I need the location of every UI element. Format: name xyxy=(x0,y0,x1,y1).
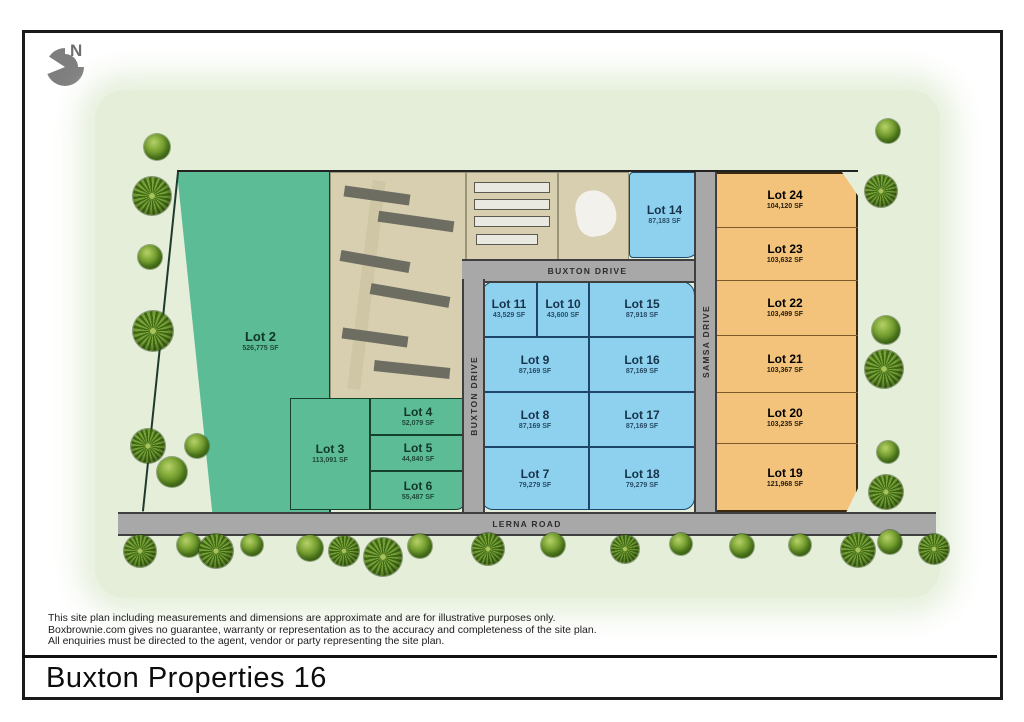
lot-20: Lot 20 103,235 SF xyxy=(712,392,858,443)
lot-14-area: 87,183 SF xyxy=(648,218,680,226)
lot-24-name: Lot 24 xyxy=(767,189,802,201)
disclaimer: This site plan including measurements an… xyxy=(48,613,768,648)
lot-9-area: 87,169 SF xyxy=(519,368,551,376)
lot-17-name: Lot 17 xyxy=(624,409,659,421)
lot-22-name: Lot 22 xyxy=(767,297,802,309)
white-building xyxy=(572,187,619,239)
lot-6-area: 55,487 SF xyxy=(402,494,434,502)
tree-icon xyxy=(329,536,359,566)
tree-icon xyxy=(124,535,156,567)
building-roof xyxy=(370,283,451,308)
aerial-photo-storage xyxy=(466,172,558,260)
lot-23-area: 103,632 SF xyxy=(767,257,803,265)
tree-icon xyxy=(865,350,903,388)
lot-10: Lot 10 43,600 SF xyxy=(537,281,589,337)
lot-19: Lot 19 121,968 SF xyxy=(712,443,858,512)
lot-9-name: Lot 9 xyxy=(521,354,550,366)
lot-6: Lot 6 55,487 SF xyxy=(370,471,466,510)
building-roof xyxy=(378,211,455,232)
tree-icon xyxy=(199,534,233,568)
lot-21-area: 103,367 SF xyxy=(767,367,803,375)
lot-18: Lot 18 79,279 SF xyxy=(589,447,695,510)
plan-title: Buxton Properties 16 xyxy=(46,662,327,695)
lot-3: Lot 3 113,091 SF xyxy=(290,398,370,510)
tree-icon xyxy=(133,177,171,215)
tree-icon xyxy=(670,533,692,555)
tree-icon xyxy=(408,534,432,558)
tree-icon xyxy=(364,538,402,576)
lot-15-name: Lot 15 xyxy=(624,298,659,310)
lot-11-name: Lot 11 xyxy=(492,298,527,310)
lot-23: Lot 23 103,632 SF xyxy=(712,227,858,280)
disclaimer-line-1: This site plan including measurements an… xyxy=(48,613,768,625)
storage-building xyxy=(474,182,550,193)
lot-21: Lot 21 103,367 SF xyxy=(712,335,858,392)
lot-24: Lot 24 104,120 SF xyxy=(712,172,858,227)
tree-icon xyxy=(730,534,754,558)
lot-10-name: Lot 10 xyxy=(545,298,580,310)
lot-5: Lot 5 44,840 SF xyxy=(370,435,466,471)
lot-4-name: Lot 4 xyxy=(404,406,433,418)
tree-icon xyxy=(177,533,201,557)
lot-15-area: 87,918 SF xyxy=(626,312,658,320)
lot-11-area: 43,529 SF xyxy=(493,312,525,320)
tree-icon xyxy=(876,119,900,143)
tree-icon xyxy=(185,434,209,458)
lot-19-name: Lot 19 xyxy=(767,467,802,479)
lot-6-name: Lot 6 xyxy=(404,480,433,492)
north-letter: N xyxy=(70,41,82,60)
lot-16-area: 87,169 SF xyxy=(626,368,658,376)
lot-7: Lot 7 79,279 SF xyxy=(481,447,589,510)
lot-16-name: Lot 16 xyxy=(624,354,659,366)
lot-14-name: Lot 14 xyxy=(647,204,682,216)
tree-icon xyxy=(872,316,900,344)
tree-icon xyxy=(138,245,162,269)
lot-20-area: 103,235 SF xyxy=(767,421,803,429)
lot-14: Lot 14 87,183 SF xyxy=(629,172,700,258)
lot-15: Lot 15 87,918 SF xyxy=(589,281,695,337)
storage-building xyxy=(476,234,538,245)
lot-8: Lot 8 87,169 SF xyxy=(481,392,589,447)
tree-icon xyxy=(241,534,263,556)
lot-9: Lot 9 87,169 SF xyxy=(481,337,589,392)
lot-22: Lot 22 103,499 SF xyxy=(712,280,858,335)
tree-icon xyxy=(131,429,165,463)
tree-icon xyxy=(878,530,902,554)
lot-7-area: 79,279 SF xyxy=(519,482,551,490)
lot-10-area: 43,600 SF xyxy=(547,312,579,320)
lot-4-area: 52,079 SF xyxy=(402,420,434,428)
storage-building xyxy=(474,216,550,227)
north-arrow-icon: N xyxy=(44,40,90,90)
storage-building xyxy=(474,199,550,210)
lot-5-name: Lot 5 xyxy=(404,442,433,454)
tree-icon xyxy=(865,175,897,207)
road-buxton-drive-vertical: BUXTON DRIVE xyxy=(462,279,485,512)
lot-22-area: 103,499 SF xyxy=(767,311,803,319)
lot-7-name: Lot 7 xyxy=(521,468,550,480)
building-roof xyxy=(374,360,451,379)
tree-icon xyxy=(472,533,504,565)
lot-8-area: 87,169 SF xyxy=(519,423,551,431)
lot-17-area: 87,169 SF xyxy=(626,423,658,431)
tree-icon xyxy=(144,134,170,160)
lot-18-name: Lot 18 xyxy=(624,468,659,480)
tree-icon xyxy=(841,533,875,567)
road-buxton-drive-vertical-label: BUXTON DRIVE xyxy=(469,356,479,436)
title-separator-line xyxy=(22,655,997,658)
lot-8-name: Lot 8 xyxy=(521,409,550,421)
lot-18-area: 79,279 SF xyxy=(626,482,658,490)
aerial-photo-building xyxy=(558,172,629,260)
tree-icon xyxy=(611,535,639,563)
tree-icon xyxy=(919,534,949,564)
road-buxton-drive-horizontal-label: BUXTON DRIVE xyxy=(548,266,628,276)
tree-icon xyxy=(869,475,903,509)
lot-17: Lot 17 87,169 SF xyxy=(589,392,695,447)
orange-lot-block: Lot 24 104,120 SF Lot 23 103,632 SF Lot … xyxy=(712,172,858,512)
lot-3-area: 113,091 SF xyxy=(312,457,348,465)
tree-icon xyxy=(297,535,323,561)
road-buxton-drive-horizontal: BUXTON DRIVE xyxy=(462,259,713,283)
lot-11: Lot 11 43,529 SF xyxy=(481,281,537,337)
lot-24-area: 104,120 SF xyxy=(767,203,803,211)
site-plan-page: N Lot 2 526,775 SF Lot 14 87,183 SF Lot … xyxy=(0,0,1024,722)
lot-4: Lot 4 52,079 SF xyxy=(370,398,466,435)
aerial-photo-apartments xyxy=(330,172,466,399)
tree-icon xyxy=(541,533,565,557)
lot-21-name: Lot 21 xyxy=(767,353,802,365)
tree-icon xyxy=(877,441,899,463)
tree-icon xyxy=(157,457,187,487)
tree-icon xyxy=(789,534,811,556)
lot-20-name: Lot 20 xyxy=(767,407,802,419)
lot-5-area: 44,840 SF xyxy=(402,456,434,464)
lot-16: Lot 16 87,169 SF xyxy=(589,337,695,392)
road-lerna-road: LERNA ROAD xyxy=(118,512,936,536)
lot-3-name: Lot 3 xyxy=(316,443,345,455)
disclaimer-line-3: All enquiries must be directed to the ag… xyxy=(48,636,768,648)
tree-icon xyxy=(133,311,173,351)
road-lerna-road-label: LERNA ROAD xyxy=(492,519,561,529)
lot-2-name: Lot 2 xyxy=(245,331,276,343)
road-samsa-drive-label: SAMSA DRIVE xyxy=(701,305,711,378)
lot-2-area: 526,775 SF xyxy=(242,345,278,353)
road-samsa-drive: SAMSA DRIVE xyxy=(694,172,717,512)
lot-19-area: 121,968 SF xyxy=(767,481,803,489)
lot-23-name: Lot 23 xyxy=(767,243,802,255)
